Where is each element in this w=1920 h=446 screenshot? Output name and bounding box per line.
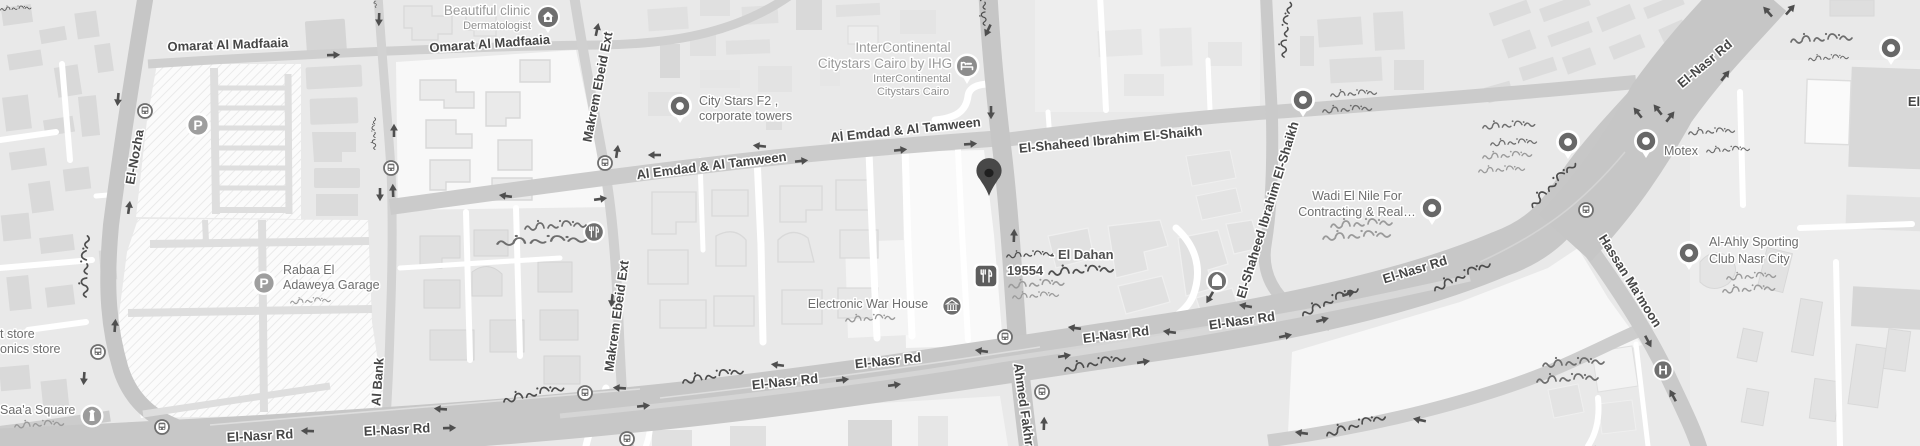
svg-text:City Stars F2 ,: City Stars F2 , <box>699 94 778 108</box>
svg-text:Club Nasr City: Club Nasr City <box>1709 252 1790 266</box>
svg-text:onics store: onics store <box>0 342 60 356</box>
svg-text:t store: t store <box>0 327 35 341</box>
svg-text:InterContinental: InterContinental <box>873 73 951 85</box>
svg-text:corporate towers: corporate towers <box>699 109 792 123</box>
svg-text:El: El <box>1908 94 1920 109</box>
svg-text:19554: 19554 <box>1007 263 1044 278</box>
svg-text:Contracting & Real…: Contracting & Real… <box>1298 205 1415 219</box>
svg-text:P: P <box>193 117 202 133</box>
svg-text:Rabaa El: Rabaa El <box>283 263 334 277</box>
svg-text:- El Dahan: - El Dahan <box>1050 247 1114 262</box>
svg-text:H: H <box>1658 363 1667 378</box>
svg-text:Saa'a Square: Saa'a Square <box>0 403 75 417</box>
svg-text:Wadi El Nile For: Wadi El Nile For <box>1312 189 1402 203</box>
svg-text:Dermatologist: Dermatologist <box>463 20 531 32</box>
svg-text:Citystars Cairo: Citystars Cairo <box>877 86 949 98</box>
svg-text:Motex: Motex <box>1664 144 1699 158</box>
svg-text:Electronic War House: Electronic War House <box>808 297 928 311</box>
svg-text:InterContinental: InterContinental <box>855 40 950 55</box>
svg-text:P: P <box>259 275 268 291</box>
svg-text:Adaweya Garage: Adaweya Garage <box>283 278 380 292</box>
svg-text:Al-Ahly Sporting: Al-Ahly Sporting <box>1709 235 1799 249</box>
svg-text:Citystars Cairo by IHG: Citystars Cairo by IHG <box>818 56 952 71</box>
svg-text:Beautiful clinic: Beautiful clinic <box>444 3 531 18</box>
